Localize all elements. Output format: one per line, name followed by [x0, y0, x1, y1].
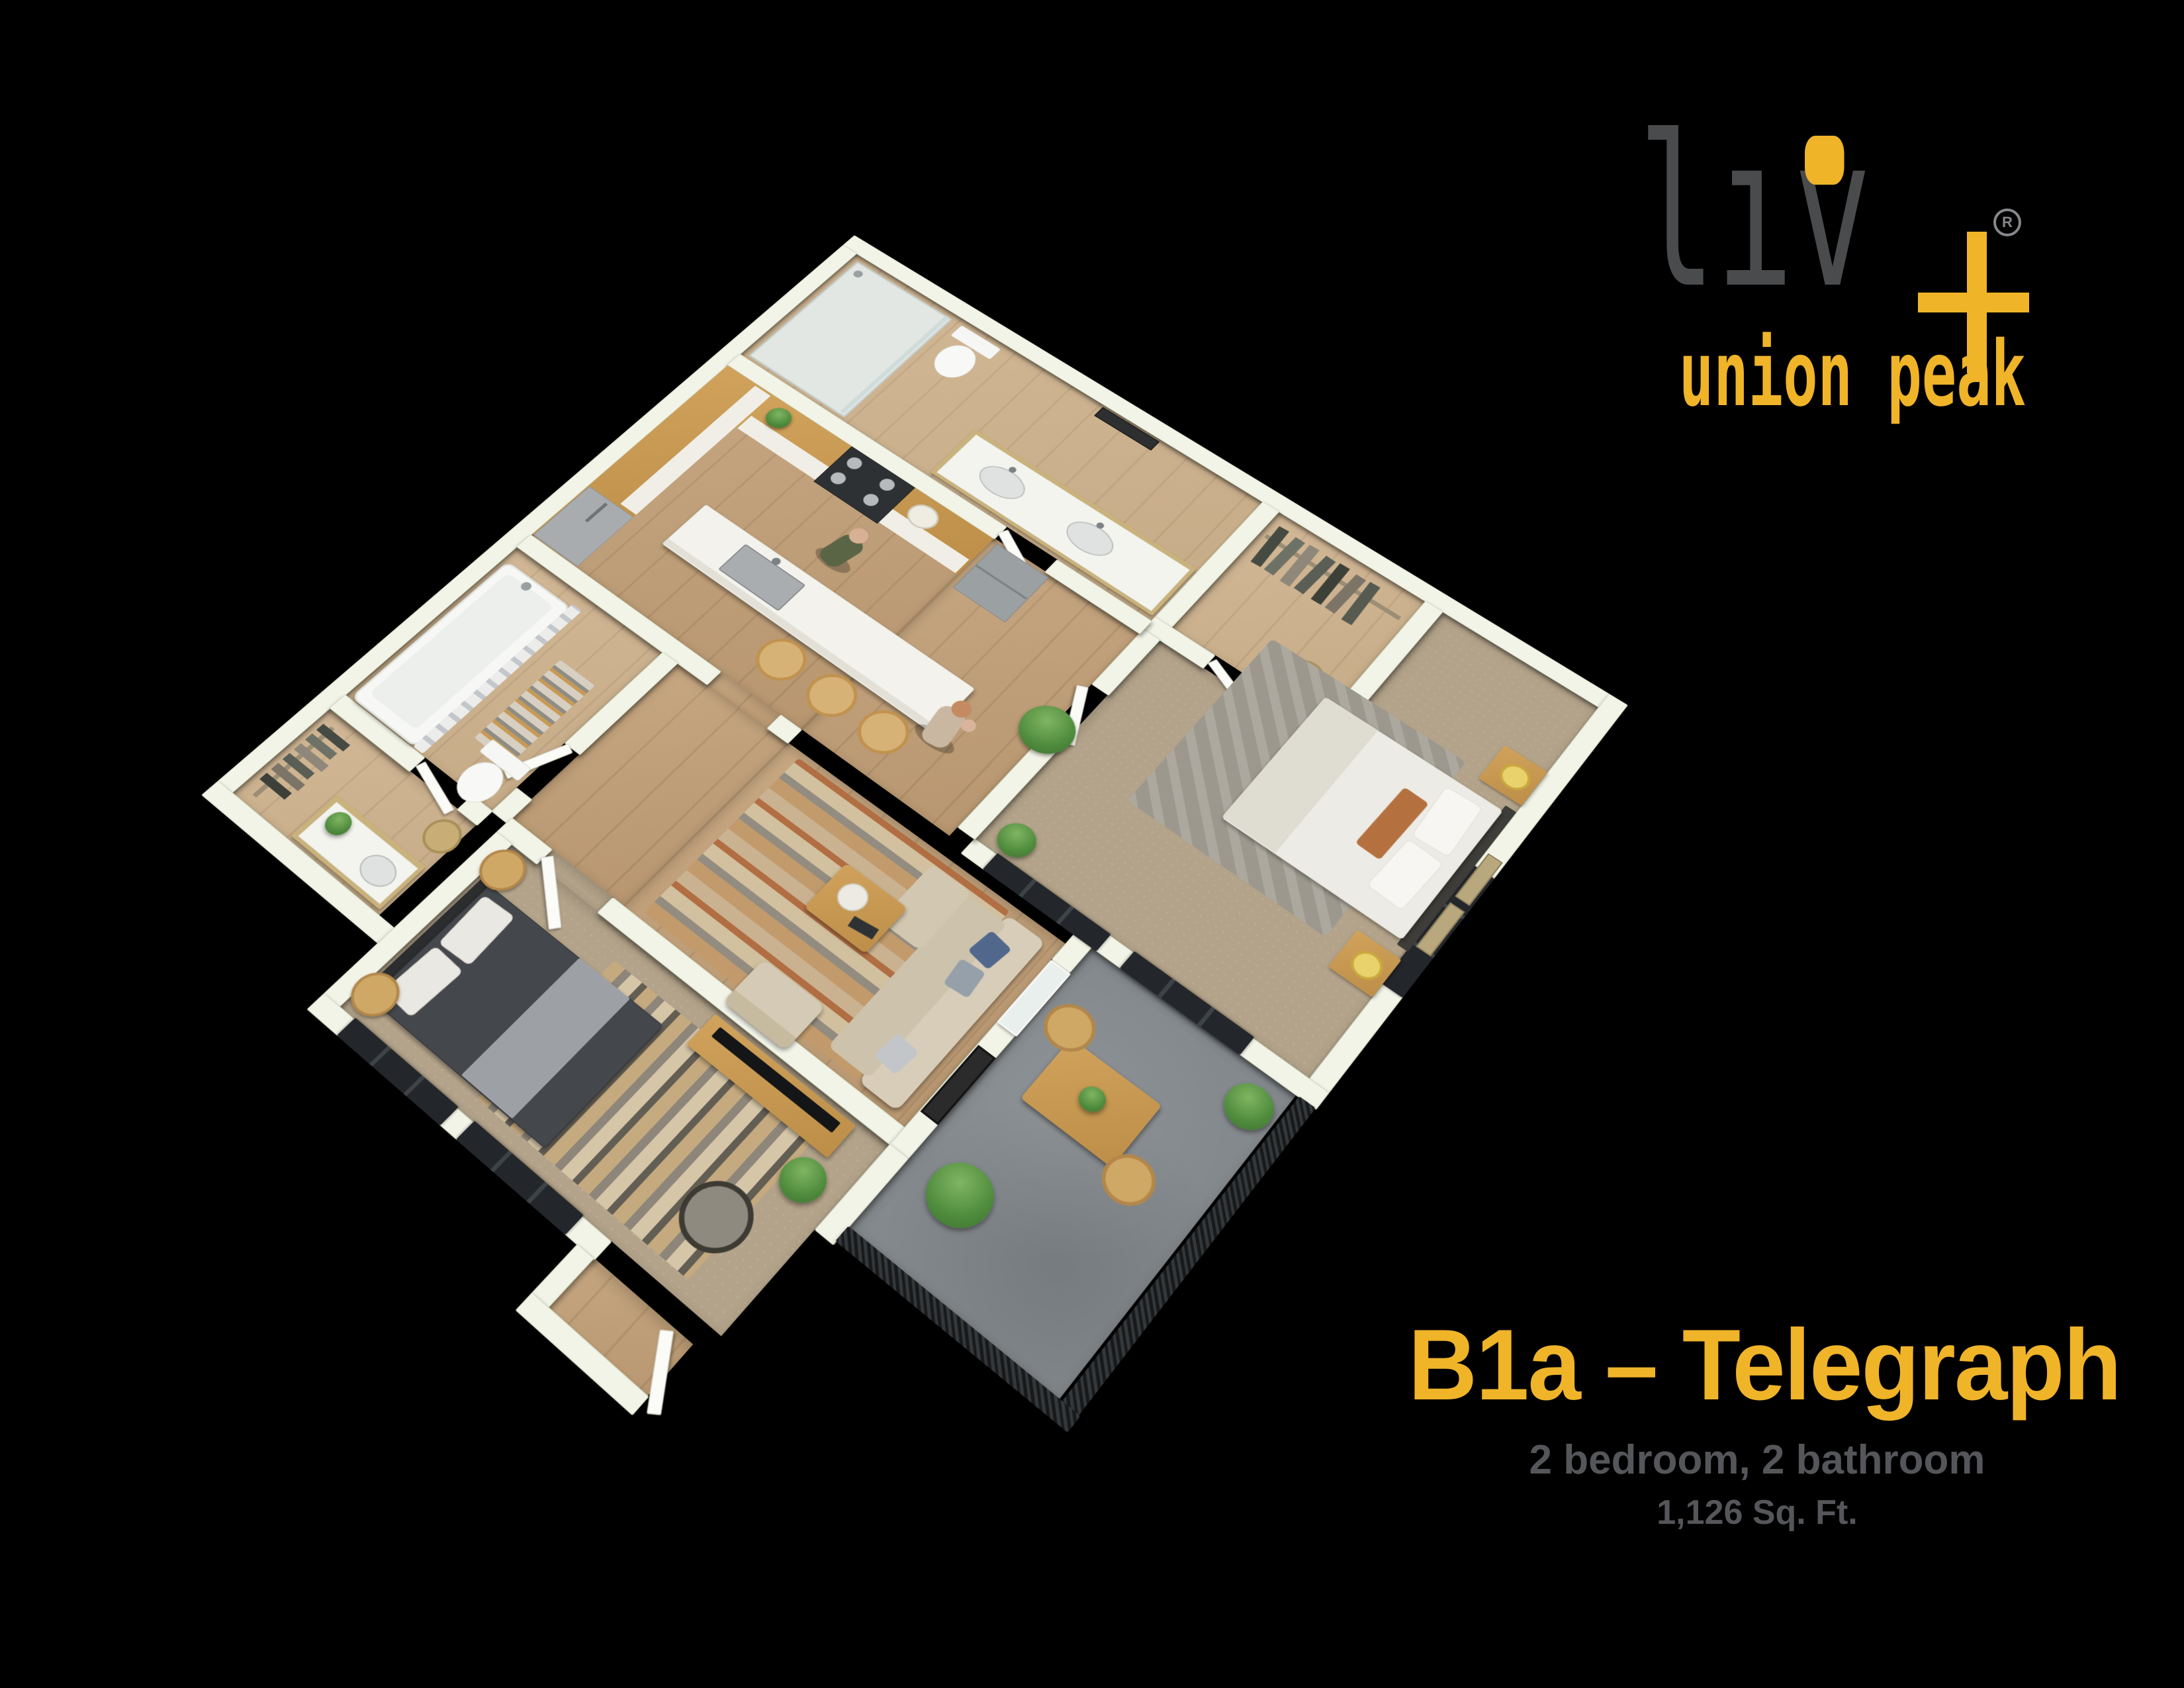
unit-bed-bath: 2 bedroom, 2 bathroom: [1390, 1436, 2124, 1483]
logo-letter-v: v: [1794, 92, 1872, 334]
registered-trademark-icon: R: [1993, 209, 2021, 236]
logo-i-dot-icon: [1805, 136, 1844, 185]
unit-title: B1a – Telegraph: [1408, 1307, 2107, 1423]
logo-letter-l: l: [1638, 92, 1716, 334]
caption-block: B1a – Telegraph 2 bedroom, 2 bathroom 1,…: [1390, 1307, 2124, 1532]
logo-letter-i: ı: [1716, 92, 1794, 334]
brand-tagline: union peak: [1679, 322, 2026, 427]
logo-plus-horizontal-icon: [1918, 293, 2029, 312]
brand-logo: lıv R union peak: [1638, 109, 2075, 427]
floorplan-flyer: lıv R union peak B1a – Telegraph 2 bedro…: [0, 0, 2184, 1688]
unit-area: 1,126 Sq. Ft.: [1390, 1493, 2124, 1532]
